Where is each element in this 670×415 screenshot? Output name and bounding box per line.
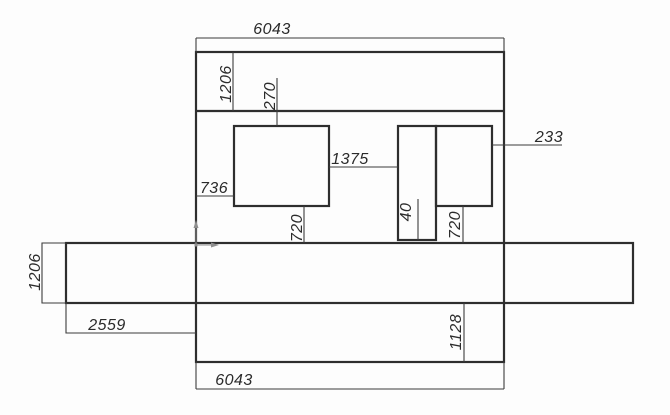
band-height-dim-lines [42, 243, 66, 303]
dimension-lines [42, 38, 562, 389]
dim-label-band-height: 1206 [27, 253, 44, 291]
dim-label-center-gap: 1375 [331, 151, 369, 168]
dim-label-right-edge-gap: 233 [534, 129, 563, 146]
ucs-y-arrowhead-icon [194, 220, 199, 228]
left-inner-box [234, 126, 329, 206]
dim-label-inner-top-offset: 270 [262, 82, 279, 111]
dim-label-left-inset: 736 [200, 180, 228, 197]
dim-label-bottom-strip-height: 1128 [448, 314, 465, 350]
dim-label-left-overhang: 2559 [87, 317, 126, 334]
dim-label-right-drop: 720 [447, 211, 464, 239]
part-outlines [66, 52, 633, 362]
dim-label-bottom-width: 6043 [215, 372, 253, 389]
dim-label-top-strip-height: 1206 [218, 65, 235, 103]
dim-label-left-drop: 720 [289, 214, 306, 242]
right-inner-wide-box [436, 126, 492, 206]
dim-label-partition-thickness: 40 [398, 203, 415, 222]
dim-label-top-width: 6043 [253, 21, 291, 38]
ucs-origin-dot [195, 244, 198, 247]
left-overhang-dim-lines [66, 303, 196, 333]
right-inner-narrow-box [398, 126, 436, 240]
technical-drawing-canvas: 6043 1206 270 736 1375 233 40 720 720 12… [0, 0, 670, 415]
horizontal-band-outline [66, 243, 633, 303]
drawing-svg: 6043 1206 270 736 1375 233 40 720 720 12… [0, 0, 670, 415]
